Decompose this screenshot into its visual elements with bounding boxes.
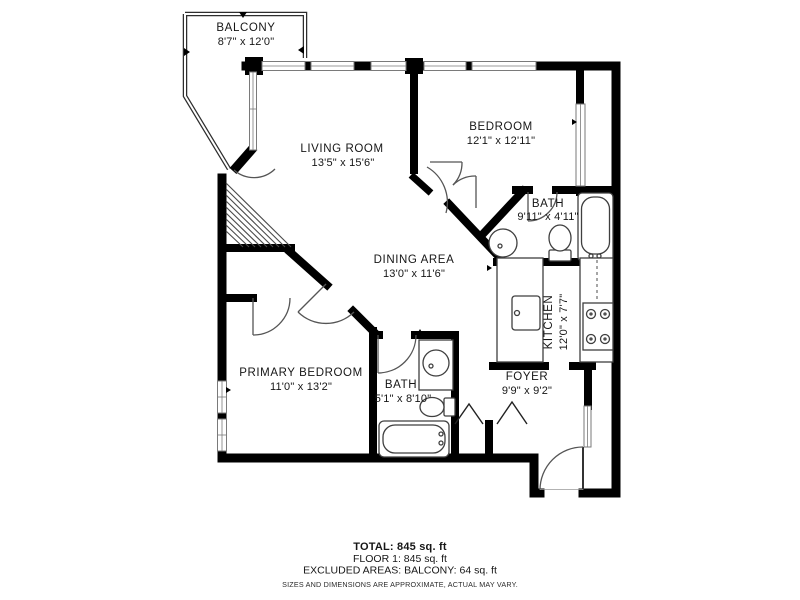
label-dining-dims: 13'0" x 11'6" bbox=[383, 268, 445, 280]
window-living-top bbox=[262, 62, 406, 71]
label-bath-top-dims: 9'11" x 4'11" bbox=[517, 211, 578, 223]
vanity-bottom-bath bbox=[419, 340, 453, 390]
label-foyer-name: FOYER bbox=[506, 371, 549, 383]
label-primary-dims: 11'0" x 13'2" bbox=[270, 381, 332, 393]
window-living-west bbox=[250, 72, 257, 150]
balcony-door-leaf bbox=[233, 147, 254, 171]
label-living-name: LIVING ROOM bbox=[300, 143, 383, 155]
window-foyer-east bbox=[584, 406, 591, 447]
label-bedroom-dims: 12'1" x 12'11" bbox=[467, 135, 535, 147]
dimension-tick bbox=[298, 46, 304, 54]
label-foyer-dims: 9'9" x 9'2" bbox=[502, 385, 552, 397]
stove bbox=[583, 303, 613, 350]
primary-bedroom-door bbox=[298, 284, 354, 323]
kitchen-counter-left bbox=[497, 258, 543, 362]
window-bedroom-east bbox=[576, 104, 585, 186]
toilet-top bbox=[549, 225, 571, 261]
label-balcony-dims: 8'7" x 12'0" bbox=[218, 36, 275, 48]
summary-total: TOTAL: 845 sq. ft bbox=[353, 541, 447, 553]
window-bedroom-top bbox=[424, 62, 536, 71]
summary-footer: TOTAL: 845 sq. ft FLOOR 1: 845 sq. ft EX… bbox=[282, 541, 518, 589]
label-living-dims: 13'5" x 15'6" bbox=[312, 157, 375, 169]
primary-closet-door bbox=[253, 298, 290, 335]
fixtures bbox=[379, 193, 613, 457]
bathtub-top bbox=[578, 193, 613, 261]
label-bath-bottom-dims: 5'1" x 8'10" bbox=[375, 393, 432, 405]
kitchen-counter-right bbox=[580, 258, 613, 362]
summary-floor: FLOOR 1: 845 sq. ft bbox=[353, 553, 447, 565]
sink-top-bath bbox=[489, 229, 517, 257]
label-dining-name: DINING AREA bbox=[374, 254, 455, 266]
label-kitchen-name: KITCHEN bbox=[543, 295, 555, 350]
stairs bbox=[226, 183, 291, 247]
bedroom-door-leaf bbox=[411, 175, 431, 193]
entry-door bbox=[540, 447, 583, 490]
floorplan-page: BALCONY 8'7" x 12'0" LIVING ROOM 13'5" x… bbox=[0, 0, 800, 600]
balcony-door-swing bbox=[234, 169, 275, 178]
summary-disclaimer: SIZES AND DIMENSIONS ARE APPROXIMATE, AC… bbox=[282, 580, 518, 589]
label-primary-name: PRIMARY BEDROOM bbox=[239, 367, 363, 379]
summary-excluded: EXCLUDED AREAS: BALCONY: 64 sq. ft bbox=[303, 565, 497, 577]
label-bath-bottom-name: BATH bbox=[385, 379, 417, 391]
floorplan-drawing: BALCONY 8'7" x 12'0" LIVING ROOM 13'5" x… bbox=[0, 0, 800, 600]
label-bath-top-name: BATH bbox=[532, 198, 564, 210]
bathtub-bottom bbox=[379, 421, 449, 457]
bedroom-closet-doors bbox=[430, 162, 476, 208]
bath-bottom-door bbox=[378, 335, 416, 373]
label-kitchen-dims: 12'0" x 7'7" bbox=[558, 294, 570, 351]
label-balcony-name: BALCONY bbox=[216, 22, 275, 34]
label-bedroom-name: BEDROOM bbox=[469, 121, 533, 133]
